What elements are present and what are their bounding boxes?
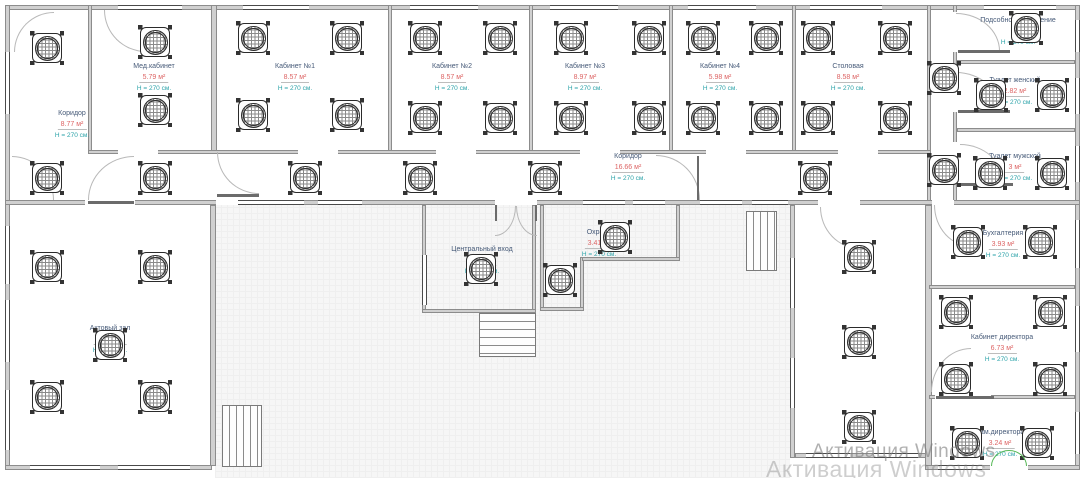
door-leaf bbox=[535, 205, 537, 221]
door-opening bbox=[818, 200, 860, 205]
ceiling-light-icon[interactable] bbox=[464, 252, 498, 286]
window bbox=[1075, 78, 1080, 114]
room-label-office4[interactable]: Кабинет №45.98 м²Н = 270 см. bbox=[700, 61, 740, 94]
window bbox=[5, 226, 10, 284]
room-name: Кабинет директора bbox=[971, 332, 1033, 343]
room-name: Кабинет №4 bbox=[700, 61, 740, 72]
ceiling-light-icon[interactable] bbox=[1023, 225, 1057, 259]
windows-activation-watermark: Активация Windows bbox=[766, 456, 986, 478]
window bbox=[700, 200, 742, 205]
ceiling-light-icon[interactable] bbox=[632, 21, 666, 55]
room-label-med-office[interactable]: Мед.кабинет5.79 м²Н = 270 см. bbox=[133, 61, 174, 94]
room-label-office1[interactable]: Кабинет №18.57 м²Н = 270 см. bbox=[275, 61, 315, 94]
room-area: 8.97 м² bbox=[571, 72, 600, 83]
room-height: Н = 270 см. bbox=[278, 83, 312, 94]
window bbox=[318, 200, 362, 205]
wall bbox=[925, 205, 932, 466]
ceiling-light-icon[interactable] bbox=[138, 250, 172, 284]
door-opening bbox=[118, 150, 158, 154]
room-area: 5.79 м² bbox=[140, 72, 169, 83]
ceiling-light-icon[interactable] bbox=[951, 225, 985, 259]
room-label-corridor-left[interactable]: Коридор8.77 м²Н = 270 см. bbox=[55, 108, 89, 141]
door-leaf bbox=[217, 194, 259, 197]
room-height: Н = 270 см. bbox=[831, 83, 865, 94]
room-name: Коридор bbox=[58, 108, 86, 119]
window bbox=[238, 200, 304, 205]
wall bbox=[792, 5, 796, 151]
room-name: Кабинет №1 bbox=[275, 61, 315, 72]
wall bbox=[957, 60, 1075, 64]
ceiling-light-icon[interactable] bbox=[939, 295, 973, 329]
door-leaf bbox=[936, 396, 994, 399]
stairs bbox=[222, 405, 262, 467]
window bbox=[422, 255, 427, 305]
ceiling-light-icon[interactable] bbox=[878, 21, 912, 55]
ceiling-light-icon[interactable] bbox=[554, 101, 588, 135]
wall bbox=[580, 257, 584, 311]
window bbox=[984, 5, 1056, 10]
ceiling-light-icon[interactable] bbox=[749, 21, 783, 55]
wall bbox=[669, 5, 673, 151]
room-height: Н = 270 см. bbox=[435, 83, 469, 94]
ceiling-light-icon[interactable] bbox=[686, 21, 720, 55]
ceiling-light-icon[interactable] bbox=[483, 101, 517, 135]
window bbox=[118, 465, 190, 470]
room-area: 8.77 м² bbox=[58, 119, 87, 130]
window bbox=[688, 5, 756, 10]
ceiling-light-icon[interactable] bbox=[138, 93, 172, 127]
stairs bbox=[746, 211, 777, 271]
ceiling-light-icon[interactable] bbox=[138, 25, 172, 59]
window bbox=[5, 390, 10, 450]
room-height: Н = 270 см. bbox=[703, 83, 737, 94]
window bbox=[550, 5, 618, 10]
window bbox=[790, 358, 795, 408]
ceiling-light-icon[interactable] bbox=[927, 153, 961, 187]
door-swing-arc bbox=[217, 152, 259, 194]
room-area: 5.98 м² bbox=[706, 72, 735, 83]
ceiling-light-icon[interactable] bbox=[927, 61, 961, 95]
ceiling-light-icon[interactable] bbox=[842, 240, 876, 274]
room-name: Коридор bbox=[614, 151, 642, 162]
room-name: Мед.кабинет bbox=[133, 61, 174, 72]
room-name: Кабинет №2 bbox=[432, 61, 472, 72]
ceiling-light-icon[interactable] bbox=[403, 161, 437, 195]
window bbox=[810, 5, 882, 10]
window bbox=[5, 300, 10, 362]
room-area: 8.57 м² bbox=[281, 72, 310, 83]
wall bbox=[957, 128, 1075, 132]
window bbox=[1075, 306, 1080, 352]
ceiling-light-icon[interactable] bbox=[236, 98, 270, 132]
ceiling-light-icon[interactable] bbox=[30, 380, 64, 414]
room-area: 16.66 м² bbox=[612, 162, 645, 173]
ceiling-light-icon[interactable] bbox=[330, 21, 364, 55]
door-leaf bbox=[88, 201, 134, 204]
stairs bbox=[479, 313, 536, 357]
wall bbox=[211, 5, 217, 151]
wall bbox=[929, 285, 1075, 289]
ceiling-light-icon[interactable] bbox=[1020, 426, 1054, 460]
window bbox=[30, 465, 100, 470]
ceiling-light-icon[interactable] bbox=[236, 21, 270, 55]
ceiling-light-icon[interactable] bbox=[939, 362, 973, 396]
door-opening bbox=[706, 150, 746, 154]
door-leaf bbox=[958, 50, 1010, 53]
wall bbox=[790, 205, 795, 458]
ceiling-light-icon[interactable] bbox=[330, 98, 364, 132]
ceiling-light-icon[interactable] bbox=[749, 101, 783, 135]
ceiling-light-icon[interactable] bbox=[138, 161, 172, 195]
ceiling-light-icon[interactable] bbox=[408, 21, 442, 55]
wall bbox=[540, 307, 584, 311]
ceiling-light-icon[interactable] bbox=[1033, 295, 1067, 329]
ceiling-light-icon[interactable] bbox=[554, 21, 588, 55]
room-area: 3 м² bbox=[1006, 162, 1025, 173]
ceiling-light-icon[interactable] bbox=[878, 101, 912, 135]
window bbox=[1075, 412, 1080, 454]
window bbox=[633, 200, 665, 205]
ceiling-light-icon[interactable] bbox=[801, 101, 835, 135]
room-area: 6.73 м² bbox=[988, 343, 1017, 354]
ceiling-light-icon[interactable] bbox=[528, 161, 562, 195]
window bbox=[1075, 220, 1080, 268]
ceiling-light-icon[interactable] bbox=[543, 263, 577, 297]
ceiling-light-icon[interactable] bbox=[288, 161, 322, 195]
room-height: Н = 270 см. bbox=[986, 250, 1020, 261]
window bbox=[243, 5, 309, 10]
floor-plan-canvas: Коридор8.77 м²Н = 270 см. Мед.кабинет5.7… bbox=[0, 0, 1084, 478]
window bbox=[583, 200, 625, 205]
ceiling-light-icon[interactable] bbox=[408, 101, 442, 135]
window bbox=[1075, 20, 1080, 52]
door-opening bbox=[436, 150, 476, 154]
ceiling-light-icon[interactable] bbox=[1035, 78, 1069, 112]
ceiling-light-icon[interactable] bbox=[974, 78, 1008, 112]
door-opening bbox=[838, 150, 878, 154]
room-height: Н = 270 см. bbox=[985, 354, 1019, 365]
wall bbox=[388, 5, 392, 151]
room-area: 8.58 м² bbox=[834, 72, 863, 83]
door-swing-arc bbox=[88, 156, 134, 200]
ceiling-light-icon[interactable] bbox=[93, 328, 127, 362]
ceiling-light-icon[interactable] bbox=[598, 220, 632, 254]
ceiling-light-icon[interactable] bbox=[1035, 156, 1069, 190]
ceiling-light-icon[interactable] bbox=[30, 31, 64, 65]
window bbox=[1075, 146, 1080, 182]
ceiling-light-icon[interactable] bbox=[30, 250, 64, 284]
ceiling-light-icon[interactable] bbox=[686, 101, 720, 135]
room-label-corridor-main[interactable]: Коридор16.66 м²Н = 270 см. bbox=[611, 151, 645, 184]
ceiling-light-icon[interactable] bbox=[842, 410, 876, 444]
window bbox=[5, 52, 10, 114]
ceiling-light-icon[interactable] bbox=[842, 325, 876, 359]
room-height: Н = 270 см. bbox=[568, 83, 602, 94]
room-height: Н = 270 см. bbox=[611, 173, 645, 184]
door-leaf bbox=[697, 156, 699, 200]
ceiling-light-icon[interactable] bbox=[798, 161, 832, 195]
window bbox=[752, 200, 788, 205]
room-name: Столовая bbox=[832, 61, 863, 72]
wall bbox=[88, 150, 931, 154]
ceiling-light-icon[interactable] bbox=[483, 21, 517, 55]
room-label-office3[interactable]: Кабинет №38.97 м²Н = 270 см. bbox=[565, 61, 605, 94]
room-name: Бухгалтерия bbox=[983, 228, 1023, 239]
door-opening bbox=[495, 200, 537, 205]
door-opening bbox=[298, 150, 338, 154]
window bbox=[790, 258, 795, 308]
ceiling-light-icon[interactable] bbox=[30, 161, 64, 195]
room-label-office2[interactable]: Кабинет №28.57 м²Н = 270 см. bbox=[432, 61, 472, 94]
room-area: 8.57 м² bbox=[438, 72, 467, 83]
room-name: Кабинет №3 bbox=[565, 61, 605, 72]
room-label-director[interactable]: Кабинет директора6.73 м²Н = 270 см. bbox=[971, 332, 1033, 365]
ceiling-light-icon[interactable] bbox=[632, 101, 666, 135]
room-area: 3.93 м² bbox=[989, 239, 1018, 250]
room-label-accounting[interactable]: Бухгалтерия3.93 м²Н = 270 см. bbox=[983, 228, 1023, 261]
room-label-dining[interactable]: Столовая8.58 м²Н = 270 см. bbox=[831, 61, 865, 94]
ceiling-light-icon[interactable] bbox=[801, 21, 835, 55]
door-swing-arc bbox=[656, 155, 700, 200]
ceiling-light-icon[interactable] bbox=[973, 156, 1007, 190]
ceiling-light-icon[interactable] bbox=[1009, 11, 1043, 45]
wall bbox=[210, 205, 216, 466]
wall bbox=[529, 5, 533, 151]
window bbox=[410, 5, 478, 10]
ceiling-light-icon[interactable] bbox=[138, 380, 172, 414]
ceiling-light-icon[interactable] bbox=[1033, 362, 1067, 396]
door-leaf bbox=[495, 205, 497, 221]
wall bbox=[676, 205, 680, 261]
room-height: Н = 270 см. bbox=[55, 130, 89, 141]
